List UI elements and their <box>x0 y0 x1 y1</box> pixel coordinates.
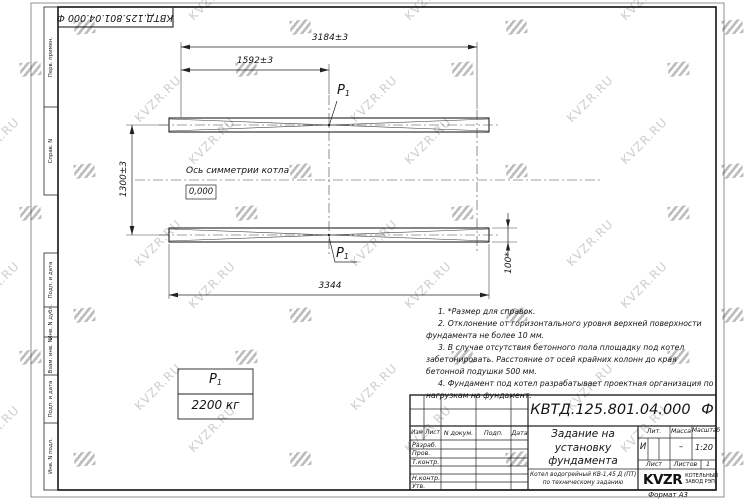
company-subtitle: КОТЕЛЬНЫЙ ЗАВОД РЭП <box>685 474 718 485</box>
load-symbol: P <box>337 83 345 98</box>
format-note: Формат А3 <box>628 491 708 499</box>
company-name: KVZR <box>643 472 682 488</box>
col-podp: Подп. <box>476 430 511 437</box>
top-stamp-doc-number: КВТД.125.801.04.000 Ф <box>58 7 173 27</box>
row-tkontr: Т.контр. <box>412 459 439 466</box>
mass-label: Масса <box>670 428 692 435</box>
product-description: Котел водогрейный КВ-1,45 Д (ПТ) по техн… <box>530 471 636 487</box>
drawing-sheet: КВТД.125.801.04.000 Ф Перв. примен. Спра… <box>0 0 750 500</box>
scale-value: 1:20 <box>692 443 716 452</box>
mass-value: – <box>670 442 692 452</box>
level-mark: 0,000 <box>186 185 216 199</box>
row-razrab: Разраб. <box>412 442 437 449</box>
lit-label: Лит. <box>638 428 670 435</box>
lit-value: И <box>638 442 648 452</box>
col-list: Лист <box>424 430 441 436</box>
row-prov: Пров. <box>412 450 430 457</box>
row-utv: Утв. <box>412 483 425 490</box>
row-nkontr: Н.контр. <box>412 475 440 482</box>
col-izm: Изм <box>410 430 424 436</box>
title-block-title: Задание на установку фундамента <box>533 428 633 469</box>
sheets-value: 1 <box>701 461 715 468</box>
note-2: 2. Отклонение от горизонтального уровня … <box>426 318 714 342</box>
col-data: Дата <box>511 430 528 437</box>
margin-label-perv-primen: Перв. примен. <box>46 27 56 87</box>
margin-label-sprav-n: Справ. N <box>46 121 56 181</box>
dim-1592: 1592±3 <box>227 56 283 66</box>
load-point-p1-top: P1 <box>337 83 350 98</box>
technical-notes: 1. *Размер для справок. 2. Отклонение от… <box>426 306 714 402</box>
product-line-2: по техническому заданию <box>530 479 636 487</box>
title-block-doc-number: КВТД.125.801.04.000 Ф <box>528 395 716 426</box>
load-symbol: P <box>209 372 217 387</box>
dim-3184: 3184±3 <box>302 33 358 43</box>
company-logo: KVZR КОТЕЛЬНЫЙ ЗАВОД РЭП <box>640 470 714 489</box>
col-n-dokum: N докум. <box>441 430 476 437</box>
load-subscript: 1 <box>345 89 350 98</box>
scale-label: Масштаб <box>692 428 716 434</box>
extension-lines <box>126 42 517 299</box>
sheet-label: Лист <box>640 461 668 468</box>
note-3: 3. В случае отсутствия бетонного пола пл… <box>426 342 714 378</box>
sheets-label: Листов <box>671 461 700 468</box>
margin-label-inv-podl: Инв. N подл. <box>46 426 56 486</box>
load-table-value: 2200 кг <box>178 398 253 412</box>
product-line-1: Котел водогрейный КВ-1,45 Д (ПТ) <box>530 471 636 479</box>
load-table-symbol: P1 <box>178 372 253 387</box>
boiler-symmetry-axis-label: Ось симметрии котла <box>186 166 289 176</box>
margin-label-podp-data-2: Подп. и дата <box>46 369 56 429</box>
load-subscript: 1 <box>217 378 222 387</box>
dim-1300: 1300±3 <box>119 151 129 207</box>
company-line-2: ЗАВОД РЭП <box>685 480 718 486</box>
load-point-p1-bottom: P1 <box>336 246 349 261</box>
dim-3344: 3344 <box>302 281 358 291</box>
load-symbol: P <box>336 246 344 261</box>
dim-100: 100* <box>504 235 514 291</box>
load-subscript: 1 <box>344 252 349 261</box>
note-1: 1. *Размер для справок. <box>426 306 714 318</box>
